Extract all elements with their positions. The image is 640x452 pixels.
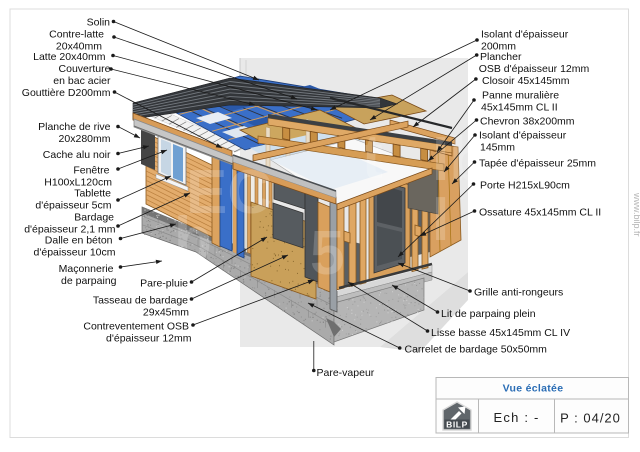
- svg-text:BILP: BILP: [446, 420, 468, 430]
- svg-text:Vue éclatée: Vue éclatée: [503, 383, 564, 395]
- svg-text:Tasseau de bardage: Tasseau de bardage: [93, 295, 188, 307]
- svg-text:Porte H215xL90cm: Porte H215xL90cm: [480, 180, 570, 192]
- svg-text:Ech : -: Ech : -: [494, 410, 540, 425]
- svg-text:145mm: 145mm: [480, 142, 515, 154]
- svg-text:en bac acier: en bac acier: [53, 75, 111, 87]
- svg-text:d'épaisseur 5cm: d'épaisseur 5cm: [35, 200, 111, 212]
- svg-text:de parpaing: de parpaing: [61, 275, 117, 287]
- svg-text:Pare-pluie: Pare-pluie: [140, 278, 188, 290]
- svg-text:Chevron 38x200mm: Chevron 38x200mm: [480, 116, 575, 128]
- svg-text:Isolant d'épaisseur: Isolant d'épaisseur: [481, 29, 569, 41]
- svg-text:Latte 20x40mm: Latte 20x40mm: [33, 51, 106, 63]
- svg-text:5: 5: [310, 219, 344, 288]
- svg-text:d'épaisseur 12mm: d'épaisseur 12mm: [106, 333, 192, 345]
- svg-text:Pare-vapeur: Pare-vapeur: [317, 367, 375, 379]
- svg-text:Contreventement OSB: Contreventement OSB: [83, 321, 189, 333]
- svg-text:Maçonnerie: Maçonnerie: [59, 263, 114, 275]
- svg-text:Ossature 45x145mm CL II: Ossature 45x145mm CL II: [479, 207, 601, 219]
- svg-text:t: t: [362, 123, 383, 192]
- svg-text:Bardage: Bardage: [74, 212, 114, 224]
- svg-text:OSB d'épaisseur 12mm: OSB d'épaisseur 12mm: [479, 63, 590, 75]
- svg-text:Contre-latte: Contre-latte: [49, 29, 104, 41]
- svg-text:Couverture: Couverture: [59, 63, 111, 75]
- svg-text:Carrelet de bardage 50x50mm: Carrelet de bardage 50x50mm: [405, 344, 548, 356]
- svg-text:Plancher: Plancher: [480, 51, 522, 63]
- svg-text:Panne muralière: Panne muralière: [482, 90, 559, 102]
- svg-text:Tablette: Tablette: [74, 188, 111, 200]
- svg-text:Lit de parpaing plein: Lit de parpaing plein: [441, 308, 536, 320]
- svg-text:Gouttière D200mm: Gouttière D200mm: [22, 87, 111, 99]
- svg-text:Grille anti-rongeurs: Grille anti-rongeurs: [474, 287, 563, 299]
- svg-text:Dalle en béton: Dalle en béton: [45, 235, 113, 247]
- svg-text:Lisse basse 45x145mm CL IV: Lisse basse 45x145mm CL IV: [431, 327, 570, 339]
- svg-text:I: I: [432, 185, 449, 254]
- svg-text:29x45mm: 29x45mm: [143, 307, 189, 319]
- svg-text:20x280mm: 20x280mm: [59, 133, 111, 145]
- svg-text:www.bilp.fr: www.bilp.fr: [632, 192, 640, 237]
- svg-text:P : 04/20: P : 04/20: [560, 411, 621, 426]
- svg-text:Planche de rive: Planche de rive: [38, 121, 111, 133]
- svg-text:Solin: Solin: [87, 17, 111, 29]
- svg-text:45x145mm CL II: 45x145mm CL II: [481, 102, 558, 114]
- svg-text:Closoir 45x145mm: Closoir 45x145mm: [482, 75, 570, 87]
- svg-text:Isolant d'épaisseur: Isolant d'épaisseur: [479, 130, 567, 142]
- svg-text:Fenêtre: Fenêtre: [73, 165, 109, 177]
- svg-text:Cache alu noir: Cache alu noir: [43, 149, 111, 161]
- svg-text:Tapée d'épaisseur 25mm: Tapée d'épaisseur 25mm: [479, 158, 596, 170]
- svg-text:d'épaisseur 10cm: d'épaisseur 10cm: [34, 247, 116, 259]
- svg-text:b: b: [174, 205, 212, 274]
